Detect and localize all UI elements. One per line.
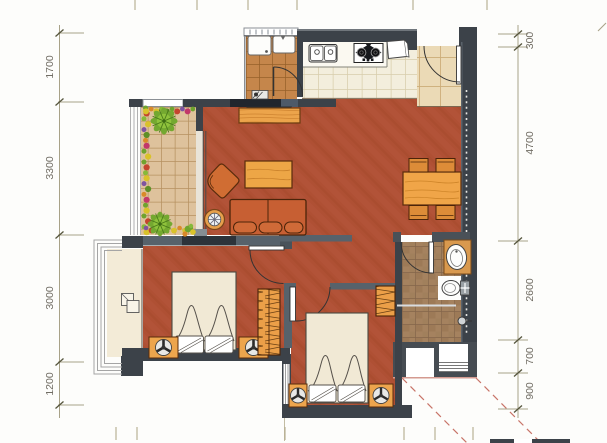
svg-text:1200: 1200 [44,372,56,396]
svg-text:2600: 2600 [524,278,536,302]
svg-text:4700: 4700 [524,131,536,155]
svg-text:3000: 3000 [44,286,56,310]
svg-text:1700: 1700 [44,55,56,79]
svg-text:3300: 3300 [44,156,56,180]
svg-text:700: 700 [524,347,536,365]
svg-text:900: 900 [524,382,536,400]
svg-text:300: 300 [524,32,536,50]
